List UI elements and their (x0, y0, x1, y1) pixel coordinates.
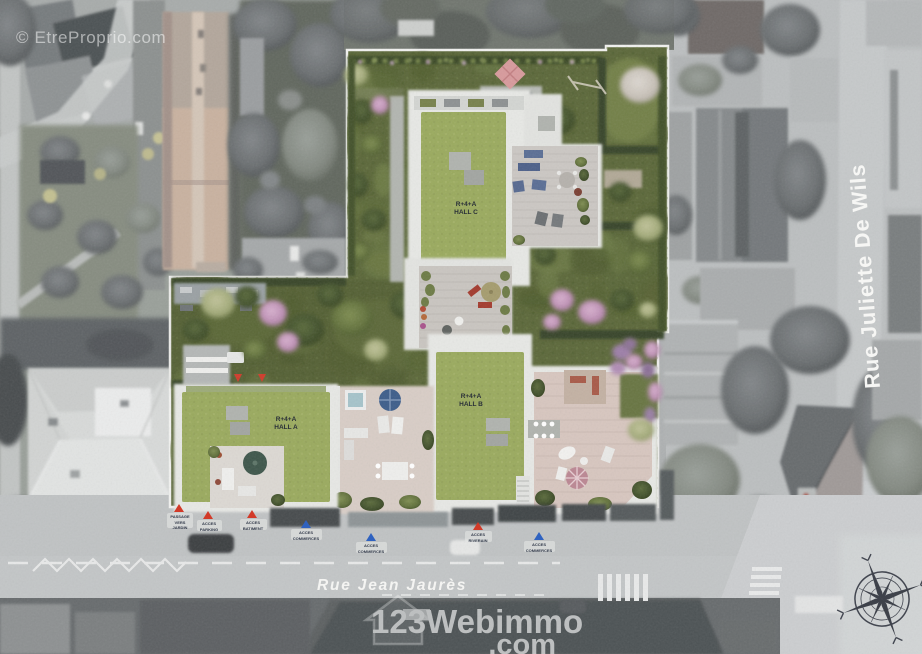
svg-text:© EtreProprio.com: © EtreProprio.com (16, 28, 166, 47)
svg-text:HALL C: HALL C (454, 209, 478, 216)
svg-text:COMMERCES: COMMERCES (293, 536, 320, 541)
svg-text:COMMERCES: COMMERCES (358, 549, 385, 554)
svg-text:PASSAGE: PASSAGE (170, 514, 190, 519)
svg-text:R+4+A: R+4+A (276, 416, 297, 423)
svg-text:R+4+A: R+4+A (456, 201, 477, 208)
svg-text:ACCES: ACCES (246, 520, 260, 525)
svg-text:ACCES: ACCES (364, 543, 378, 548)
svg-text:Rue Jean Jaurès: Rue Jean Jaurès (317, 577, 467, 594)
svg-text:ACCES: ACCES (471, 532, 485, 537)
svg-text:.com: .com (488, 629, 556, 654)
svg-text:ACCES: ACCES (299, 530, 313, 535)
svg-text:ACCES: ACCES (202, 521, 216, 526)
svg-text:RIVERAIN: RIVERAIN (468, 538, 487, 543)
svg-text:COMMERCES: COMMERCES (526, 548, 553, 553)
svg-text:BATIMENT: BATIMENT (243, 526, 264, 531)
svg-text:JARDIN: JARDIN (173, 525, 188, 530)
svg-text:HALL B: HALL B (459, 401, 483, 408)
svg-text:PARKING: PARKING (200, 527, 218, 532)
svg-text:R+4+A: R+4+A (461, 393, 482, 400)
svg-text:ACCES: ACCES (532, 542, 546, 547)
svg-text:HALL A: HALL A (274, 424, 298, 431)
